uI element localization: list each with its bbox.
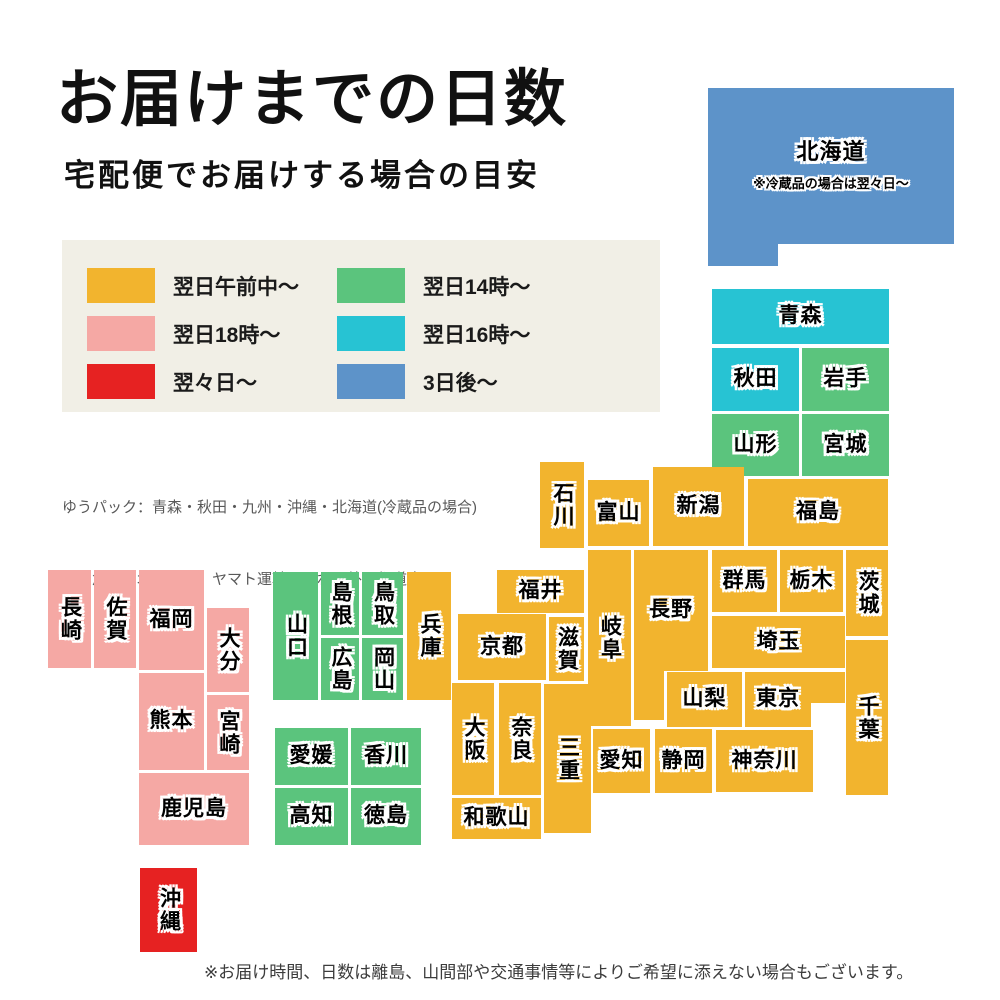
pref-label: 鳥取: [371, 581, 393, 627]
pref-yamanashi: 山梨: [667, 672, 742, 727]
pref-label: 秋田: [734, 368, 778, 390]
pref-kagawa: 香川: [351, 728, 421, 785]
pref-ishikawa: 石川: [540, 462, 584, 548]
pref-fukushima: 福島: [748, 479, 888, 546]
pref-label: 千葉: [856, 695, 878, 741]
map-filler-nagano-tab: [634, 671, 664, 720]
pref-wakayama: 和歌山: [452, 798, 541, 839]
pref-label: 静岡: [662, 750, 706, 772]
japan-map: 北海道※冷蔵品の場合は翌々日〜青森秋田岩手山形宮城新潟石川富山福島群馬栃木茨城埼…: [0, 0, 1000, 1000]
pref-label: 神奈川: [732, 750, 798, 772]
pref-label: 福井: [519, 580, 563, 602]
pref-label: 青森: [779, 305, 823, 327]
pref-aichi: 愛知: [593, 729, 650, 793]
pref-iwate: 岩手: [802, 348, 889, 411]
pref-saga: 佐賀: [94, 570, 136, 668]
pref-aomori: 青森: [712, 289, 889, 344]
pref-label: 大分: [217, 627, 239, 673]
pref-okinawa: 沖縄: [140, 868, 197, 952]
pref-label: 長野: [649, 599, 693, 621]
pref-label: 大阪: [462, 716, 484, 762]
pref-kanagawa: 神奈川: [716, 730, 813, 792]
pref-okayama: 岡山: [362, 638, 403, 700]
pref-ehime: 愛媛: [275, 728, 348, 785]
pref-label: 広島: [329, 646, 351, 692]
pref-miyagi: 宮城: [802, 414, 889, 476]
pref-label: 滋賀: [555, 626, 577, 672]
pref-label: 香川: [364, 745, 408, 767]
pref-label: 栃木: [790, 570, 834, 592]
map-filler-tokyo-tab: [811, 672, 845, 703]
pref-kochi: 高知: [275, 788, 348, 845]
pref-label: 北海道: [796, 140, 865, 163]
pref-shizuoka: 静岡: [655, 729, 712, 793]
pref-note: ※冷蔵品の場合は翌々日〜: [753, 173, 909, 192]
pref-saitama: 埼玉: [712, 616, 845, 668]
pref-label: 山梨: [683, 688, 727, 710]
pref-label: 兵庫: [418, 613, 440, 659]
map-filler-hokkaido-tab: [708, 244, 778, 266]
pref-fukuoka: 福岡: [139, 570, 204, 670]
pref-label: 宮崎: [217, 710, 239, 756]
pref-label: 愛媛: [290, 745, 334, 767]
pref-label: 岩手: [824, 368, 868, 390]
pref-kumamoto: 熊本: [139, 673, 204, 770]
pref-label: 長崎: [58, 596, 80, 642]
pref-label: 愛知: [600, 750, 644, 772]
pref-oita: 大分: [207, 608, 249, 692]
pref-hiroshima: 広島: [321, 638, 359, 700]
pref-label: 和歌山: [464, 807, 530, 829]
pref-label: 佐賀: [104, 596, 126, 642]
pref-label: 宮城: [824, 434, 868, 456]
pref-label: 山口: [284, 613, 306, 659]
pref-label: 三重: [556, 736, 578, 782]
pref-label: 埼玉: [757, 631, 801, 653]
pref-toyama: 富山: [588, 480, 649, 546]
pref-label: 茨城: [856, 570, 878, 616]
pref-label: 京都: [480, 636, 524, 658]
pref-label: 新潟: [677, 495, 721, 517]
delivery-days-infographic: お届けまでの日数 宅配便でお届けする場合の目安 翌日午前中〜翌日18時〜翌々日〜…: [0, 0, 1000, 1000]
pref-label: 石川: [551, 482, 573, 528]
pref-tokushima: 徳島: [351, 788, 421, 845]
footer-note-line: ※お届け時間、日数は離島、山間部や交通事情等によりご希望に添えない場合もございま…: [204, 958, 913, 988]
pref-nara: 奈良: [499, 683, 541, 795]
pref-label: 岡山: [371, 646, 393, 692]
pref-label: 高知: [290, 805, 334, 827]
pref-label: 東京: [756, 688, 800, 710]
pref-fukui: 福井: [497, 570, 584, 613]
pref-niigata: 新潟: [653, 467, 744, 546]
pref-hokkaido: 北海道※冷蔵品の場合は翌々日〜: [708, 88, 954, 244]
pref-chiba: 千葉: [846, 640, 888, 795]
pref-tochigi: 栃木: [780, 550, 843, 612]
pref-nagasaki: 長崎: [48, 570, 91, 668]
pref-kyoto: 京都: [458, 614, 546, 680]
pref-akita: 秋田: [712, 348, 799, 411]
pref-gunma: 群馬: [712, 550, 777, 612]
pref-nagano: 長野: [634, 550, 708, 671]
pref-label: 奈良: [509, 716, 531, 762]
pref-gifu: 岐阜: [588, 550, 631, 726]
pref-shiga: 滋賀: [549, 617, 584, 681]
pref-ibaraki: 茨城: [846, 550, 888, 636]
pref-label: 福岡: [150, 609, 194, 631]
pref-label: 沖縄: [157, 887, 179, 933]
pref-tokyo: 東京: [745, 672, 811, 727]
pref-osaka: 大阪: [452, 683, 494, 795]
pref-shimane: 島根: [321, 572, 359, 635]
pref-miyazaki: 宮崎: [207, 695, 249, 770]
pref-label: 群馬: [723, 570, 767, 592]
pref-yamaguchi: 山口: [273, 572, 318, 700]
footer-notes: ※お届け時間、日数は離島、山間部や交通事情等によりご希望に添えない場合もございま…: [204, 898, 913, 1000]
pref-label: 山形: [734, 434, 778, 456]
pref-label: 徳島: [364, 805, 408, 827]
pref-tottori: 鳥取: [362, 572, 403, 635]
pref-label: 島根: [329, 581, 351, 627]
pref-label: 岐阜: [598, 615, 620, 661]
pref-mie: 三重: [544, 684, 591, 833]
pref-label: 富山: [597, 502, 641, 524]
pref-kagoshima: 鹿児島: [139, 773, 249, 845]
pref-hyogo: 兵庫: [407, 572, 451, 700]
pref-label: 熊本: [150, 710, 194, 732]
pref-label: 鹿児島: [161, 798, 227, 820]
pref-label: 福島: [796, 501, 840, 523]
